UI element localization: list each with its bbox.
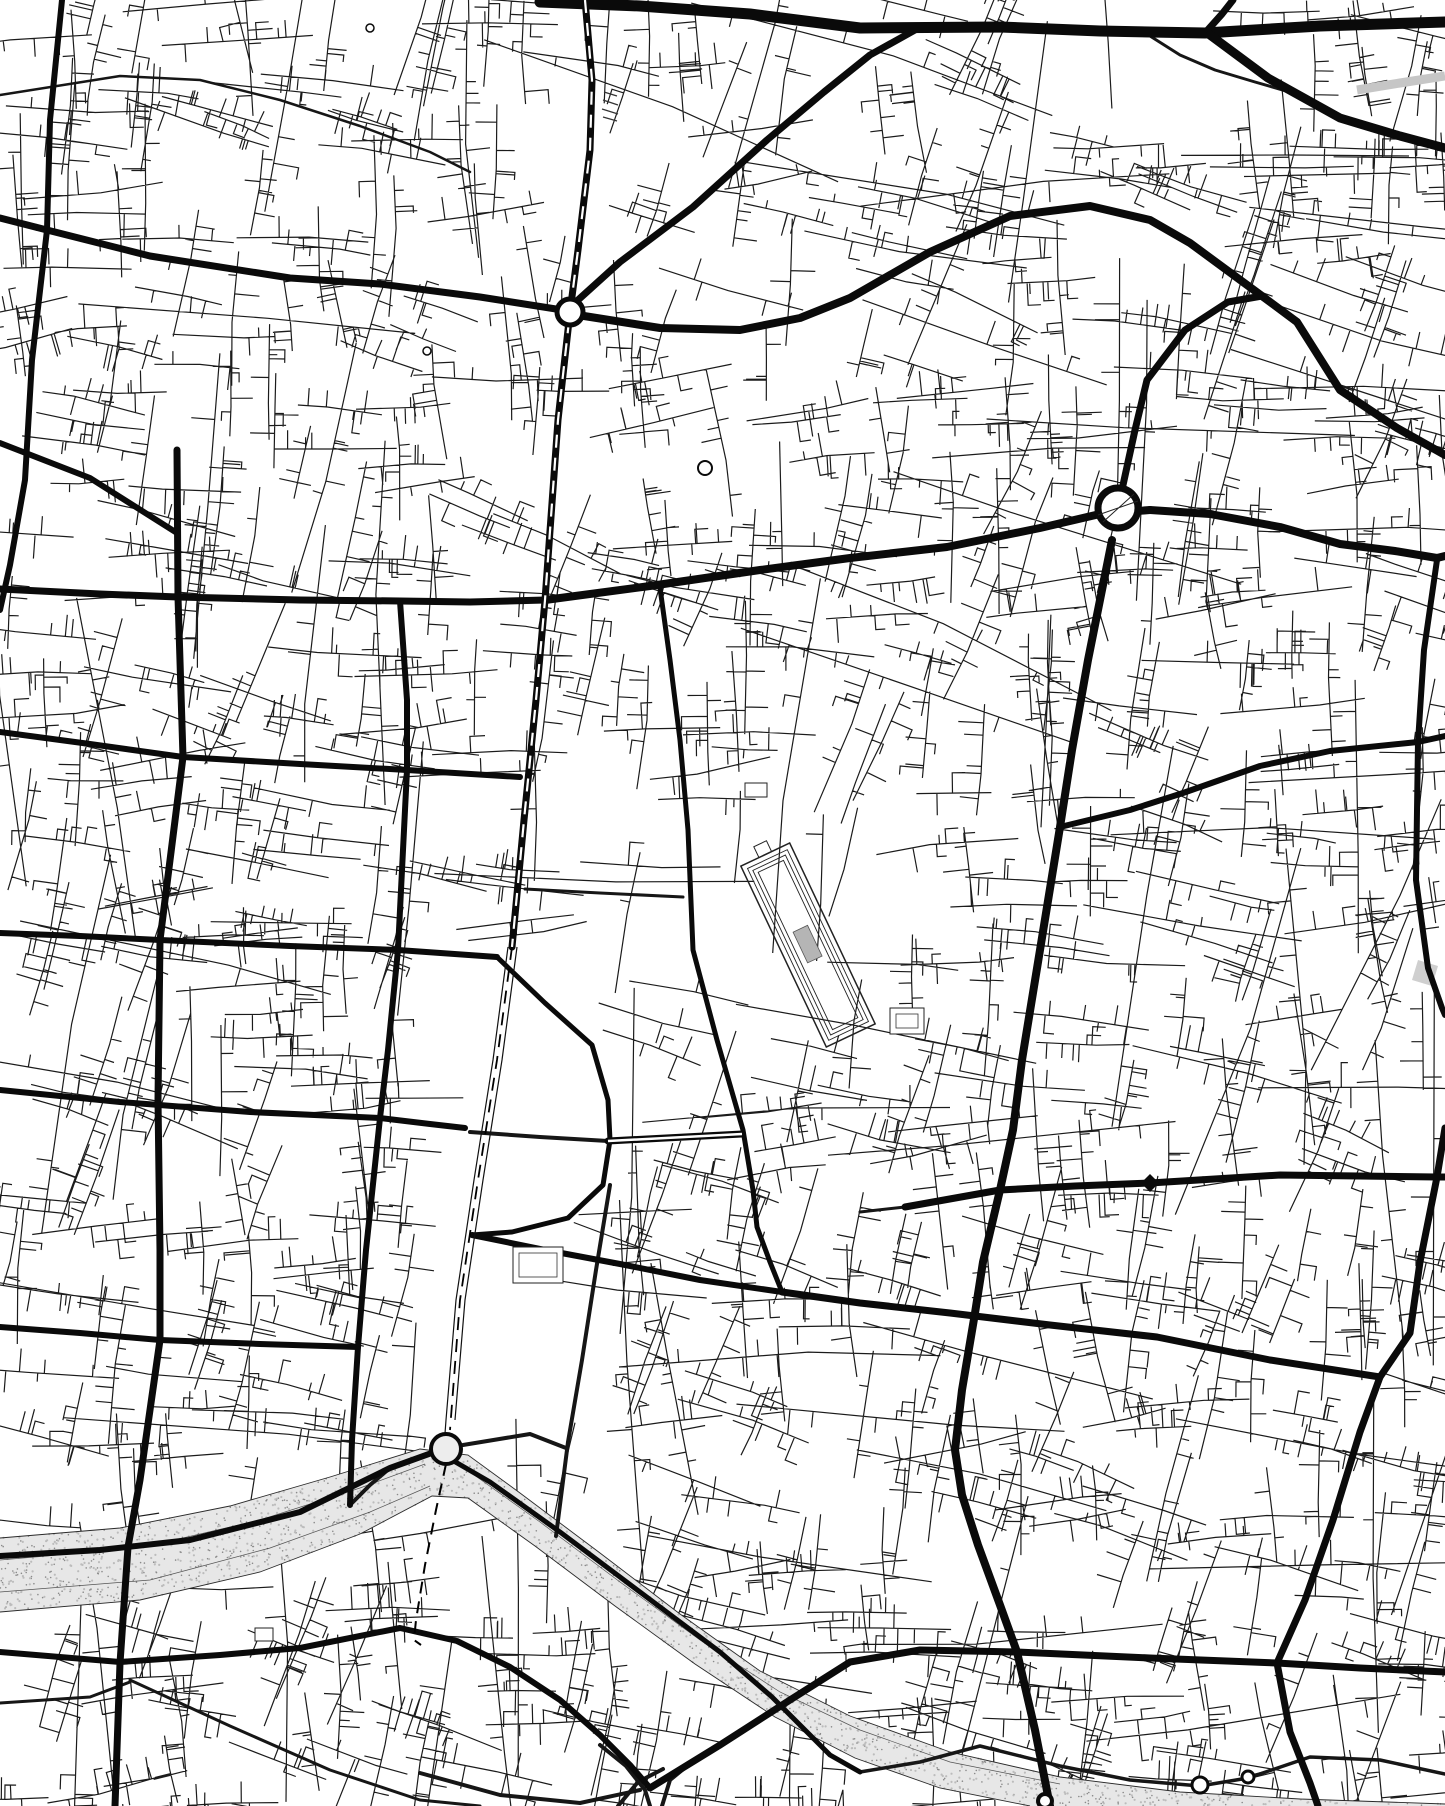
road-metro-street-north bbox=[512, 0, 592, 947]
road-northwest-arterial bbox=[0, 218, 556, 309]
road-right-north-south bbox=[1416, 560, 1445, 1015]
map-canvas bbox=[0, 0, 1445, 1806]
building-outline bbox=[513, 1247, 563, 1283]
small-circle-1 bbox=[366, 24, 374, 32]
building-outline bbox=[745, 783, 767, 797]
road-interchange-se-diagonal bbox=[1210, 35, 1445, 148]
road-curve-a-east-arterial bbox=[584, 206, 1445, 455]
city-street-map bbox=[0, 0, 1445, 1806]
landmark-complex bbox=[736, 832, 875, 1047]
road-west-h5 bbox=[0, 1327, 358, 1347]
small-circle-2 bbox=[423, 347, 431, 355]
road-mid-east-west bbox=[905, 1175, 1445, 1207]
road-ne-diagonal bbox=[1277, 1128, 1445, 1806]
small-circle-5 bbox=[1242, 1771, 1254, 1783]
landmark-complex-group bbox=[736, 832, 875, 1047]
road-west-v1 bbox=[115, 450, 183, 1806]
road-east-corridor-road bbox=[556, 1185, 610, 1536]
road-west-h3 bbox=[0, 933, 497, 957]
road-top-highway bbox=[540, 2, 1445, 33]
roundabout-north bbox=[557, 299, 583, 325]
bridge-circle bbox=[431, 1434, 461, 1464]
road-roundabout1-ne-link bbox=[578, 30, 915, 300]
building-outline bbox=[255, 1628, 273, 1641]
road-roundabout2-nne bbox=[1118, 296, 1262, 508]
metro-line-layer bbox=[414, 0, 592, 1645]
junctions-layer bbox=[366, 24, 1254, 1806]
road-sw-lower-diagonal bbox=[130, 1680, 480, 1806]
road-circle-east-link bbox=[463, 1434, 566, 1448]
gray-ribbon bbox=[1357, 76, 1445, 90]
building-outline bbox=[890, 1008, 924, 1034]
road-lens-east-road bbox=[1060, 742, 1418, 827]
metro-dash-corridor bbox=[450, 947, 512, 1430]
small-circle-6 bbox=[1038, 1794, 1052, 1806]
road-sw-short-link bbox=[0, 1682, 130, 1703]
rail-hatch bbox=[603, 100, 618, 105]
small-circle-4 bbox=[1192, 1777, 1208, 1793]
metro-corridor-edge bbox=[455, 947, 517, 1420]
road-hook-road bbox=[472, 957, 610, 1235]
major-roads-layer bbox=[0, 0, 1445, 1806]
road-west-h1 bbox=[0, 589, 545, 602]
road-mid-ew-west-ext bbox=[860, 1207, 905, 1212]
road-complex-west-link bbox=[525, 889, 683, 897]
small-circle-3 bbox=[698, 461, 712, 475]
rail-hatch bbox=[602, 109, 618, 114]
